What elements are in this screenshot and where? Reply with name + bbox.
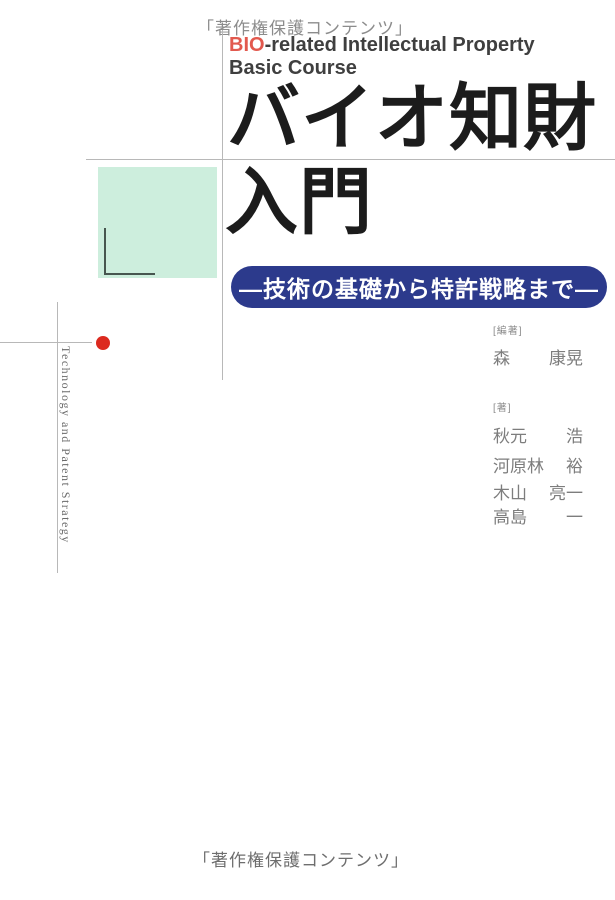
author-name: 河原林 裕 <box>493 452 583 477</box>
subtitle-pill: ―技術の基礎から特許戦略まで― <box>231 266 607 308</box>
title-underline-rule <box>86 159 615 160</box>
author-name-family: 河原林 <box>493 452 544 477</box>
course-heading-line2: Basic Course <box>229 57 357 80</box>
author-name-family: 高島 <box>493 503 527 528</box>
author-name-given: 亮一 <box>549 479 583 504</box>
subtitle-text: ―技術の基礎から特許戦略まで― <box>239 270 599 304</box>
editor-name: 森 康晃 <box>493 344 583 369</box>
editor-name-family: 森 <box>493 344 510 369</box>
editor-label: [編著] <box>493 322 523 337</box>
side-vertical-text: Technology and Patent Strategy <box>58 346 73 558</box>
book-title-line1: バイオ知財 <box>227 82 597 155</box>
author-name-given: 一 <box>566 503 583 528</box>
authors-label: [著] <box>493 399 512 414</box>
copyright-watermark-bottom: 「著作権保護コンテンツ」 <box>193 846 409 871</box>
course-heading-line1: BIO-related Intellectual Property <box>229 34 535 57</box>
editor-name-given: 康晃 <box>549 344 583 369</box>
center-vertical-rule <box>222 30 223 380</box>
course-heading-rest: -related Intellectual Property <box>265 34 535 56</box>
book-title-line2: 入門 <box>225 166 373 239</box>
course-heading-bio: BIO <box>229 34 265 56</box>
author-name: 秋元 浩 <box>493 422 583 447</box>
book-cover: 「著作権保護コンテンツ」 BIO-related Intellectual Pr… <box>0 0 615 900</box>
red-dot-decoration <box>96 336 110 350</box>
left-horizontal-rule <box>0 342 92 343</box>
corner-bracket-decoration <box>104 228 155 275</box>
author-name: 高島 一 <box>493 503 583 528</box>
author-name-given: 裕 <box>566 452 583 477</box>
author-name: 木山 亮一 <box>493 479 583 504</box>
author-name-given: 浩 <box>566 422 583 447</box>
author-name-family: 秋元 <box>493 422 527 447</box>
author-name-family: 木山 <box>493 479 527 504</box>
